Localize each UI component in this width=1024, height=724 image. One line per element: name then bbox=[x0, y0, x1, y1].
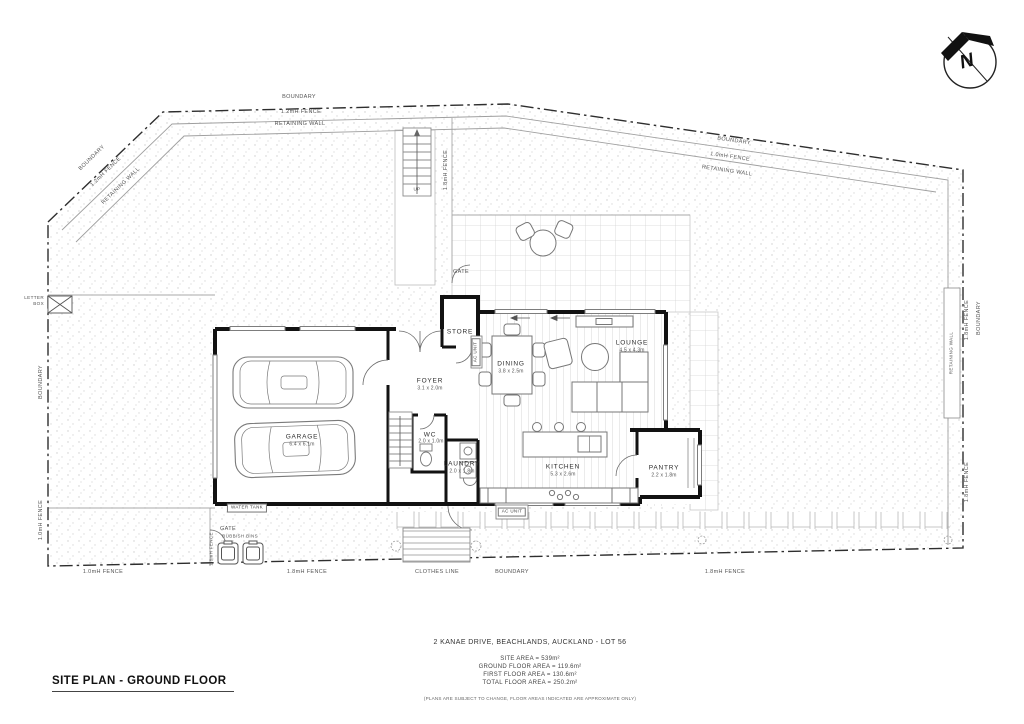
gate-label-bottom: GATE bbox=[220, 526, 236, 532]
room-dim-pantry: 2.2 x 1.8m bbox=[651, 473, 676, 479]
fence-label-bottom-right: 1.8mH FENCE bbox=[705, 569, 745, 575]
fence-label-left: 1.0mH FENCE bbox=[38, 500, 44, 540]
room-dim-lounge: 4.5 x 4.3m bbox=[619, 348, 644, 354]
letterbox bbox=[48, 296, 72, 313]
room-label-lounge: LOUNGE bbox=[616, 339, 648, 346]
room-dim-garage: 6.4 x 6.1m bbox=[289, 442, 314, 448]
boundary-label-right: BOUNDARY bbox=[976, 301, 982, 335]
room-label-store: STORE bbox=[447, 328, 473, 335]
page-title: SITE PLAN - GROUND FLOOR bbox=[52, 675, 234, 692]
retaining-wall-label-right: RETAINING WALL bbox=[950, 332, 955, 374]
room-dim-foyer: 3.1 x 2.0m bbox=[417, 386, 442, 392]
boundary-label-top: BOUNDARY bbox=[282, 94, 316, 100]
address-line: 2 KANAE DRIVE, BEACHLANDS, AUCKLAND - LO… bbox=[330, 639, 730, 646]
clothes-line-label: CLOTHES LINE bbox=[415, 569, 459, 575]
room-dim-kitchen: 5.3 x 2.6m bbox=[550, 472, 575, 478]
disclaimer-note: (PLANS ARE SUBJECT TO CHANGE, FLOOR AREA… bbox=[330, 696, 730, 701]
room-dim-wc: 2.0 x 1.0m bbox=[418, 439, 443, 445]
room-label-kitchen: KITCHEN bbox=[546, 463, 580, 470]
ground-floor-area-line: GROUND FLOOR AREA = 119.6m² bbox=[330, 663, 730, 671]
rubbish-bins-label: RUBBISH BINS bbox=[222, 535, 258, 540]
room-label-foyer: FOYER bbox=[417, 377, 443, 384]
room-dim-dining: 3.8 x 2.5m bbox=[498, 369, 523, 375]
ac-unit-label-wall: AC UNIT bbox=[472, 338, 481, 366]
site-area-line: SITE AREA = 539m² bbox=[330, 655, 730, 663]
clothes-line bbox=[403, 528, 470, 562]
fence-label-bottom-mid: 1.8mH FENCE bbox=[287, 569, 327, 575]
fence-label-bins: 1.8mH FENCE bbox=[210, 532, 215, 566]
fence-label-top: 1.2mH FENCE bbox=[281, 109, 321, 115]
room-label-dining: DINING bbox=[497, 360, 525, 367]
car bbox=[233, 357, 353, 408]
plan-summary: 2 KANAE DRIVE, BEACHLANDS, AUCKLAND - LO… bbox=[330, 639, 730, 701]
room-label-garage: GARAGE bbox=[286, 433, 319, 440]
gate-label-top: GATE bbox=[453, 269, 469, 275]
fence-label-bottom-left: 1.0mH FENCE bbox=[83, 569, 123, 575]
fence-label-right-upper: 1.8mH FENCE bbox=[964, 300, 970, 340]
stairs-up-label: UP bbox=[414, 188, 421, 193]
car bbox=[234, 420, 356, 478]
letterbox-label: LETTER BOX bbox=[18, 295, 44, 306]
room-label-laundry: LAUNDRY bbox=[444, 460, 481, 467]
total-floor-area-line: TOTAL FLOOR AREA = 250.2m² bbox=[330, 679, 730, 687]
interior-stairs bbox=[389, 412, 412, 468]
room-label-pantry: PANTRY bbox=[649, 464, 680, 471]
ac-unit-label-ground: AC UNIT bbox=[498, 508, 526, 517]
water-tank-label: WATER TANK bbox=[227, 504, 267, 513]
room-dim-laundry: 2.0 x 1.8m bbox=[449, 469, 474, 475]
retaining-wall-label-top: RETAINING WALL bbox=[275, 121, 326, 127]
paver-row bbox=[394, 512, 950, 529]
fence-label-stairs: 1.8mH FENCE bbox=[443, 150, 449, 190]
site-plan-drawing: GARAGE 6.4 x 6.1m FOYER 3.1 x 2.0m STORE… bbox=[0, 0, 1024, 724]
boundary-label-bottom: BOUNDARY bbox=[495, 569, 529, 575]
first-floor-area-line: FIRST FLOOR AREA = 130.6m² bbox=[330, 671, 730, 679]
fence-label-right-lower: 1.8mH FENCE bbox=[964, 462, 970, 502]
boundary-label-left: BOUNDARY bbox=[38, 365, 44, 399]
